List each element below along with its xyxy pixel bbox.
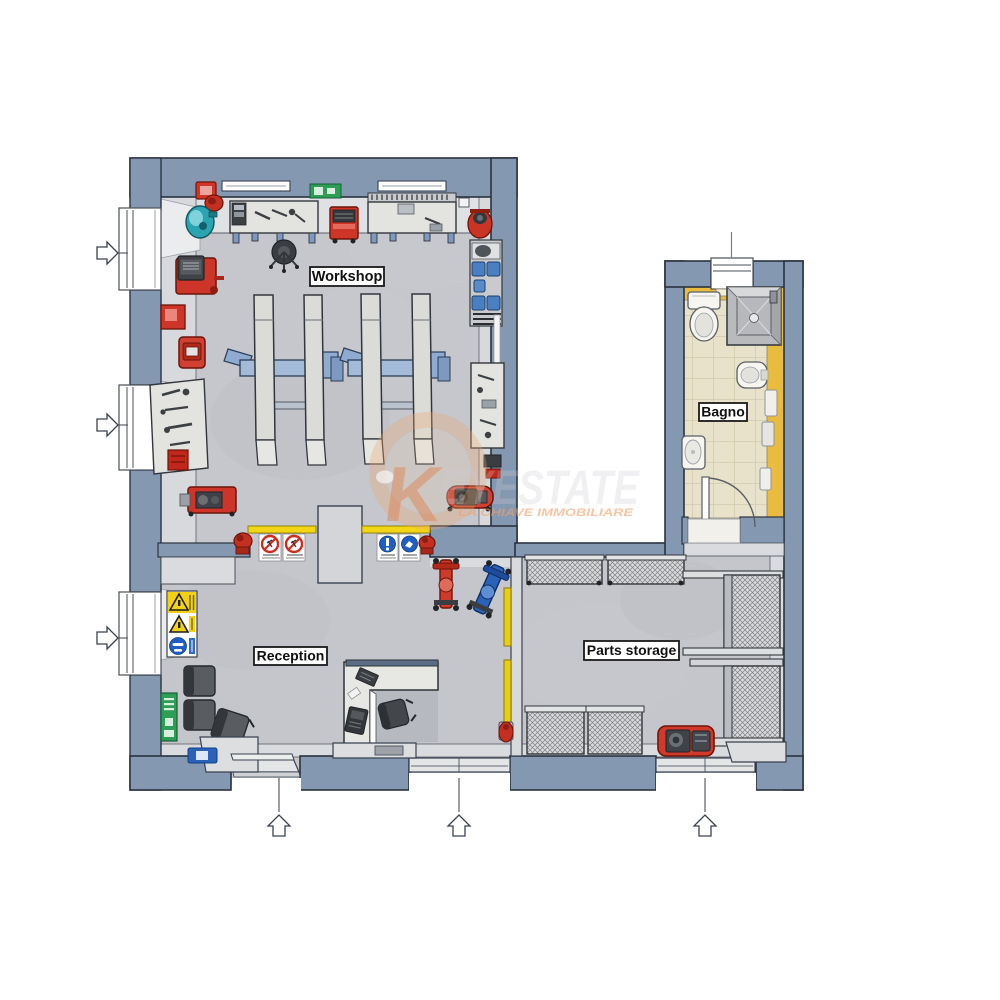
svg-text:Parts storage: Parts storage: [587, 642, 677, 658]
svg-text:Reception: Reception: [257, 648, 325, 664]
svg-text:Bagno: Bagno: [701, 404, 745, 420]
svg-text:Workshop: Workshop: [312, 269, 383, 285]
svg-text:LA CHIAVE IMMOBILIARE: LA CHIAVE IMMOBILIARE: [458, 507, 634, 519]
